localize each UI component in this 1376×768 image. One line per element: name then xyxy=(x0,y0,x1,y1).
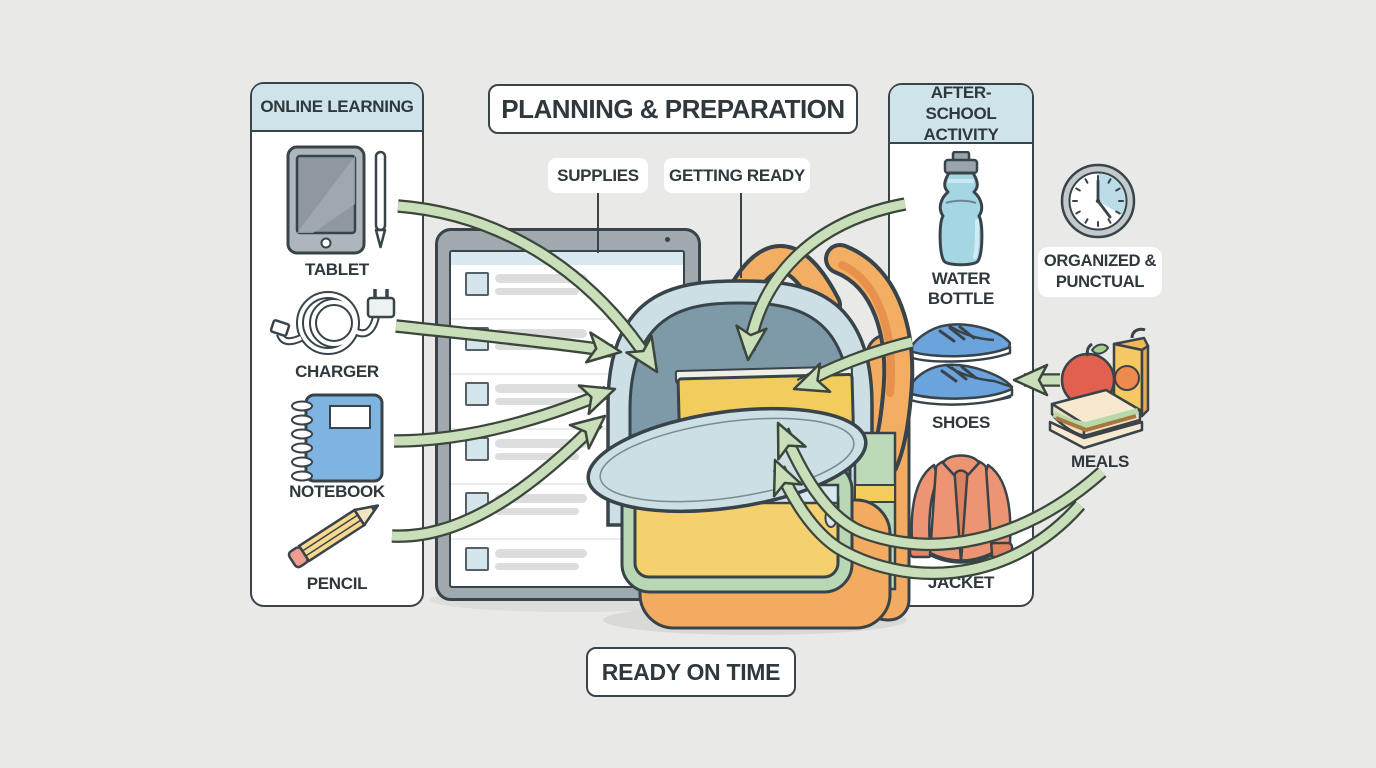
ready-on-time-label: READY ON TIME xyxy=(586,647,796,697)
online-learning-panel: ONLINE LEARNING TABLET xyxy=(250,82,424,607)
meals-label: MEALS xyxy=(1068,452,1132,472)
supplies-label: SUPPLIES xyxy=(548,158,648,193)
water-bottle-icon xyxy=(928,151,994,269)
page-title: PLANNING & PREPARATION xyxy=(488,84,858,134)
online-learning-header: ONLINE LEARNING xyxy=(252,84,422,132)
tablet-label: TABLET xyxy=(252,260,422,280)
checkbox-icon xyxy=(465,382,489,406)
notebook-icon xyxy=(284,392,394,484)
checkbox-icon xyxy=(465,272,489,296)
pencil-label: PENCIL xyxy=(252,574,422,594)
tablet-icon xyxy=(284,144,394,256)
checkbox-icon xyxy=(465,437,489,461)
organized-punctual-label: ORGANIZED & PUNCTUAL xyxy=(1038,247,1162,297)
checkbox-icon xyxy=(465,327,489,351)
notebook-label: NOTEBOOK xyxy=(252,482,422,502)
backpack-illustration xyxy=(555,195,925,650)
charger-label: CHARGER xyxy=(252,362,422,382)
after-school-header: AFTER-SCHOOL ACTIVITY xyxy=(890,85,1032,144)
charger-icon xyxy=(270,286,406,360)
getting-ready-label: GETTING READY xyxy=(664,158,810,193)
infographic-canvas: PLANNING & PREPARATION SUPPLIES GETTING … xyxy=(0,0,1376,768)
clock-icon xyxy=(1059,162,1137,240)
checkbox-icon xyxy=(465,547,489,571)
checkbox-icon xyxy=(465,492,489,516)
meals-icon xyxy=(1044,326,1164,458)
pencil-icon xyxy=(280,502,396,576)
